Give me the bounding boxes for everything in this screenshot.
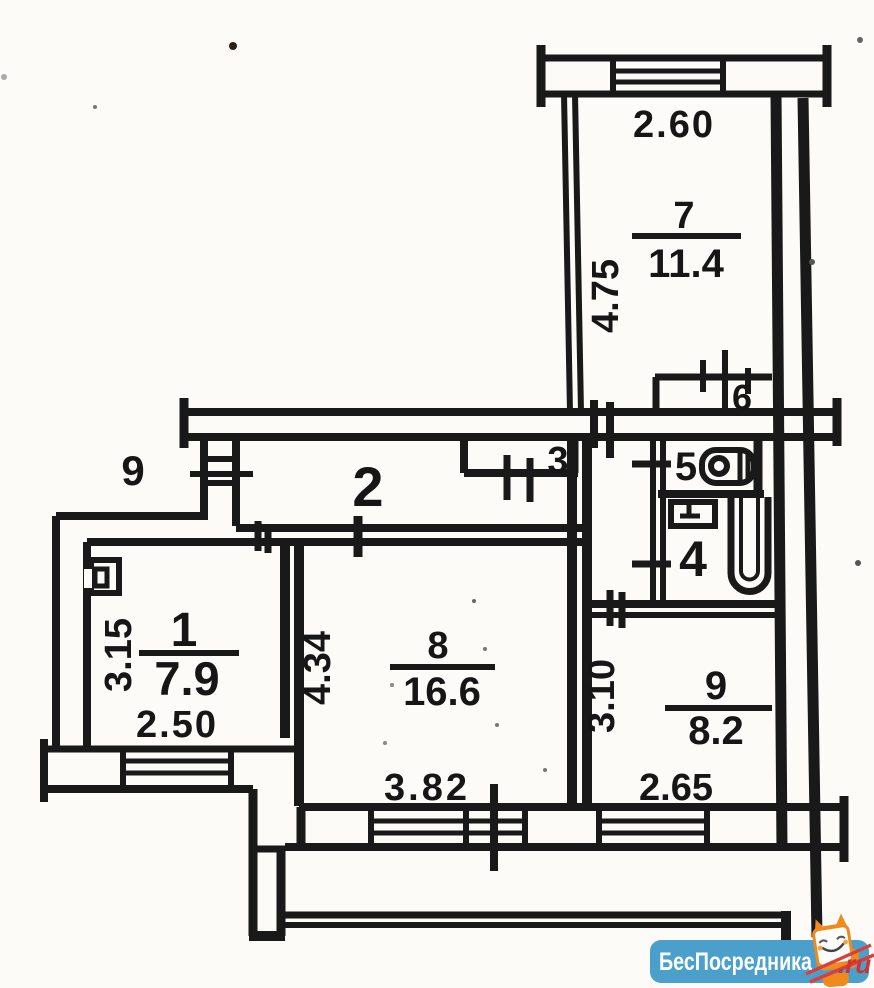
svg-text:3.82: 3.82 bbox=[384, 767, 470, 809]
svg-text:2: 2 bbox=[352, 455, 383, 518]
svg-text:7.9: 7.9 bbox=[154, 652, 219, 705]
svg-text:11.4: 11.4 bbox=[648, 242, 724, 286]
svg-text:БесПосредника: БесПосредника bbox=[659, 948, 813, 976]
svg-text:8.2: 8.2 bbox=[688, 709, 744, 753]
svg-text:4.34: 4.34 bbox=[297, 631, 339, 705]
svg-text:16.6: 16.6 bbox=[403, 670, 481, 714]
svg-text:5: 5 bbox=[675, 445, 697, 489]
svg-text:3.10: 3.10 bbox=[581, 659, 623, 733]
svg-text:7: 7 bbox=[673, 195, 694, 237]
svg-text:4.75: 4.75 bbox=[585, 259, 627, 333]
svg-text:8: 8 bbox=[427, 625, 448, 667]
svg-text:6: 6 bbox=[732, 377, 752, 418]
svg-text:9: 9 bbox=[705, 664, 727, 708]
svg-text:3.15: 3.15 bbox=[98, 618, 140, 692]
svg-text:2.65: 2.65 bbox=[639, 767, 713, 809]
svg-text:2.60: 2.60 bbox=[633, 104, 715, 146]
svg-text:9: 9 bbox=[121, 447, 144, 494]
svg-text:4: 4 bbox=[679, 531, 707, 587]
svg-text:1: 1 bbox=[171, 604, 198, 657]
svg-text:.ru: .ru bbox=[838, 949, 871, 979]
svg-text:2.50: 2.50 bbox=[136, 704, 218, 746]
svg-text:3: 3 bbox=[547, 440, 568, 482]
